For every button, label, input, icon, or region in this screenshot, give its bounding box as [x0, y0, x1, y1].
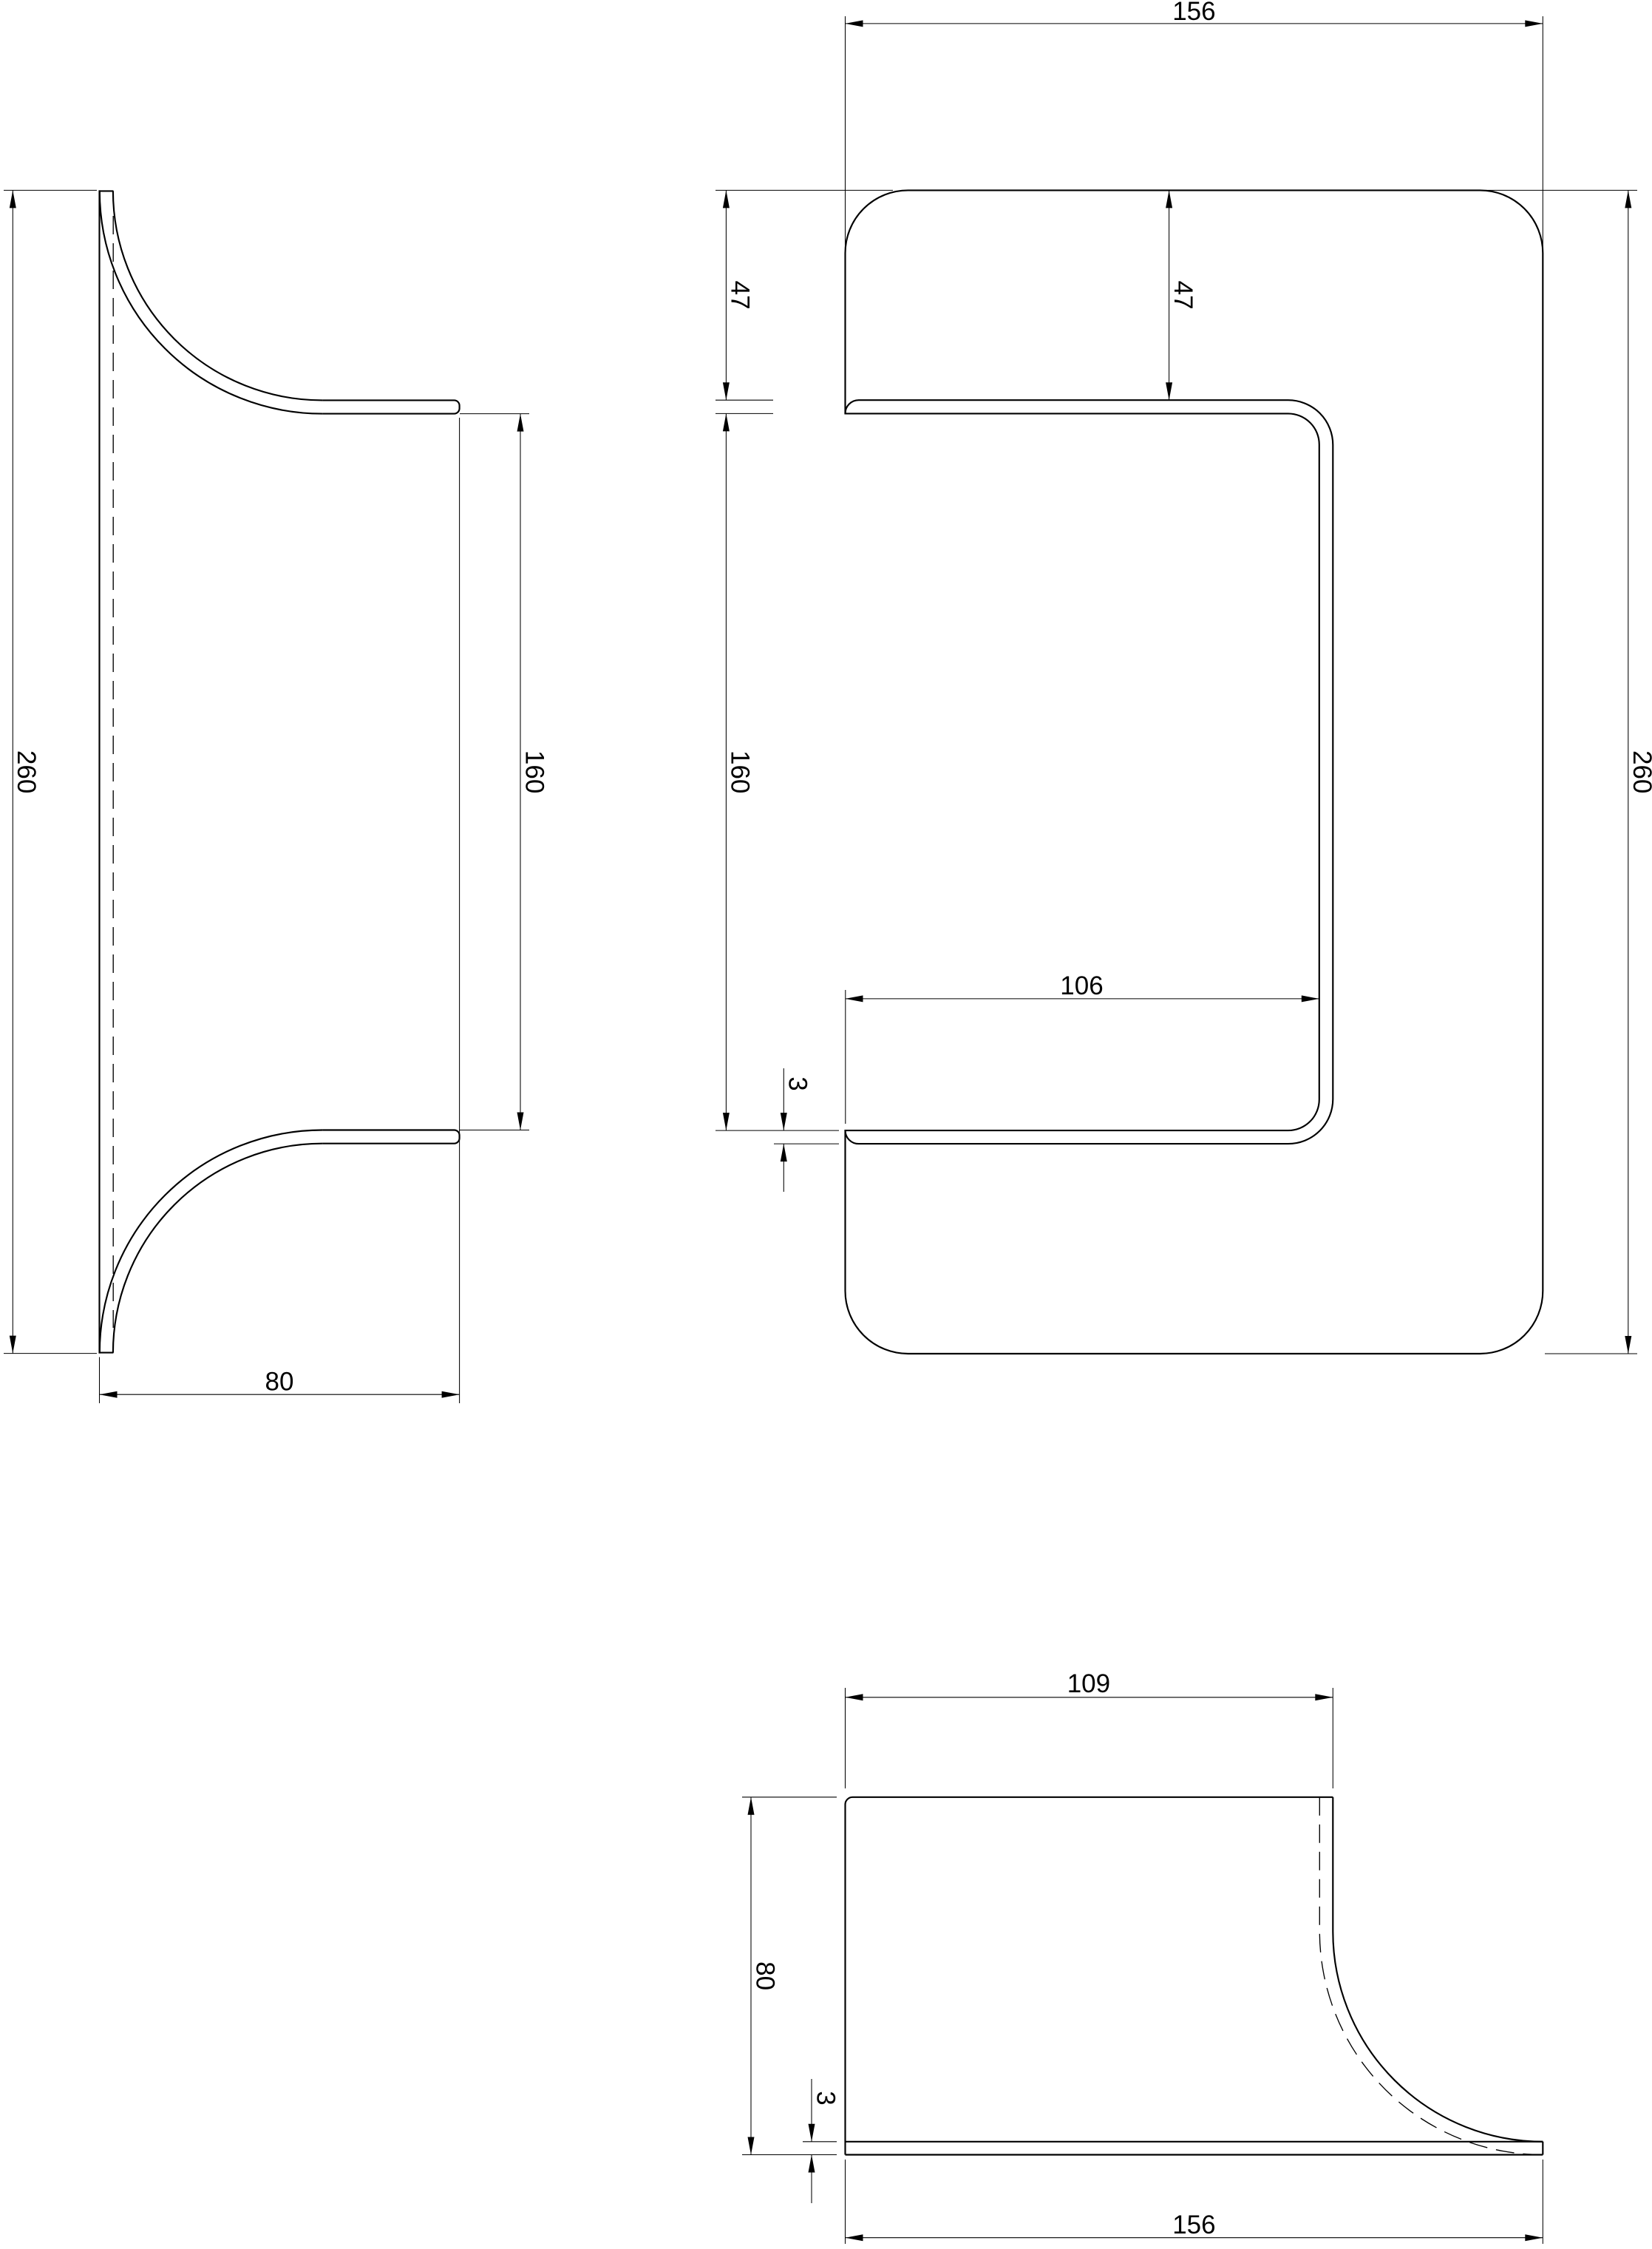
svg-text:3: 3 — [811, 2091, 840, 2105]
svg-text:106: 106 — [1060, 971, 1103, 1000]
svg-text:156: 156 — [1172, 0, 1215, 26]
svg-text:160: 160 — [520, 750, 548, 793]
svg-text:80: 80 — [265, 1368, 294, 1397]
svg-text:80: 80 — [750, 1961, 779, 1990]
svg-text:260: 260 — [12, 750, 41, 793]
svg-text:3: 3 — [783, 1076, 812, 1090]
svg-text:47: 47 — [1169, 281, 1197, 310]
svg-text:47: 47 — [726, 281, 755, 310]
svg-text:260: 260 — [1628, 750, 1652, 793]
svg-text:160: 160 — [726, 750, 755, 793]
svg-text:109: 109 — [1067, 1669, 1110, 1698]
svg-text:156: 156 — [1172, 2211, 1215, 2239]
